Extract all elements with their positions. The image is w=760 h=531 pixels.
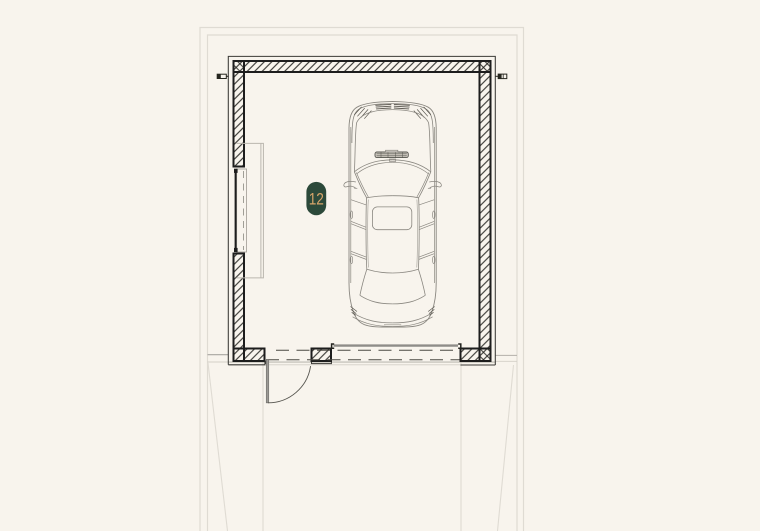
svg-text:12: 12: [309, 189, 324, 208]
